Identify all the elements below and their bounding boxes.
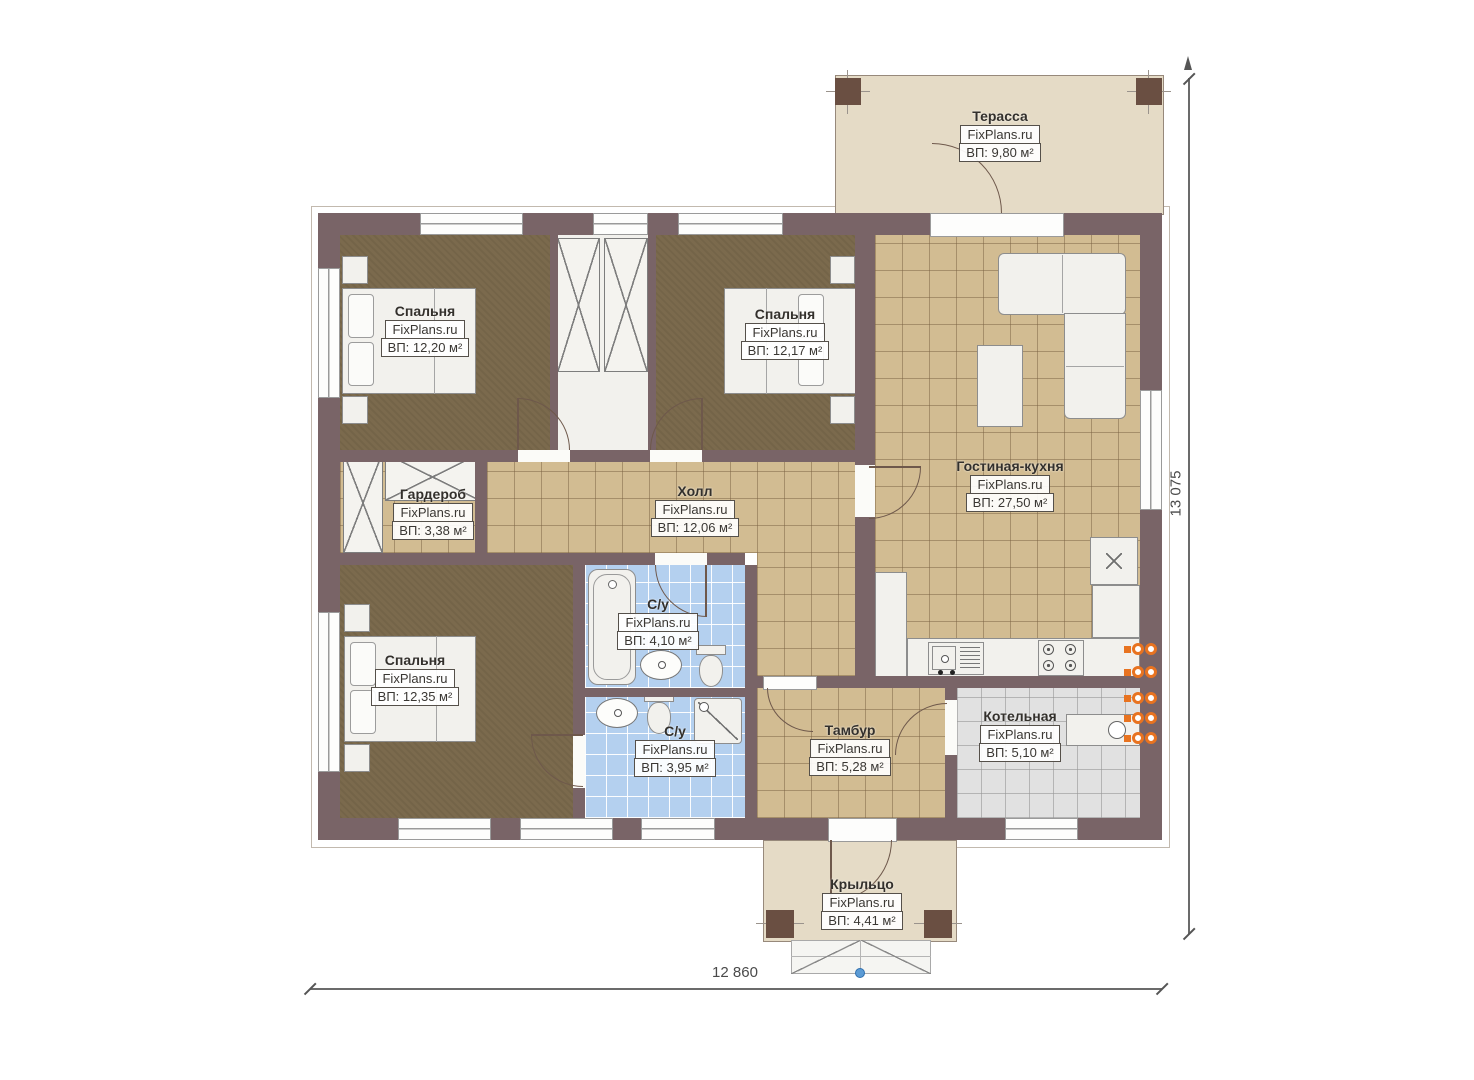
basin-drain [614, 709, 622, 717]
door-opening [518, 450, 570, 462]
sink-drain [941, 655, 949, 663]
sofa-cushion-line [1062, 255, 1063, 313]
room-label-living-kitchen: Гостиная-кухня FixPlans.ru ВП: 27,50 м² [930, 458, 1090, 512]
bathtub-drain [608, 580, 617, 589]
room-name: Гардероб [400, 486, 466, 502]
radiator-icon [1132, 712, 1144, 724]
stove-burner [1043, 644, 1054, 655]
watermark-box: FixPlans.ru [385, 320, 464, 339]
room-name: Котельная [983, 708, 1056, 724]
room-name: Гостиная-кухня [956, 458, 1063, 474]
door-leaf [517, 398, 519, 450]
dimension-width: 12 860 [660, 964, 810, 981]
area-box: ВП: 9,80 м² [959, 143, 1040, 162]
radiator-icon [1145, 732, 1157, 744]
room-name: С/у [664, 723, 686, 739]
nightstand [342, 396, 368, 424]
area-box: ВП: 12,20 м² [381, 338, 470, 357]
wall-living-left [855, 235, 875, 688]
toilet-bowl [699, 655, 723, 687]
watermark-box: FixPlans.ru [635, 740, 714, 759]
closet-wardrobe-unit [604, 238, 648, 372]
window [641, 818, 715, 840]
pipe-symbol [1124, 715, 1131, 722]
room-label-bathroom-2: С/у FixPlans.ru ВП: 3,95 м² [605, 723, 745, 777]
wall-bedroom3-top [340, 553, 585, 565]
radiator-icon [1132, 643, 1144, 655]
room-label-boiler: Котельная FixPlans.ru ВП: 5,10 м² [950, 708, 1090, 762]
radiator-icon [1132, 732, 1144, 744]
stove-burner [1065, 644, 1076, 655]
dimension-line-horizontal [310, 988, 1162, 990]
stove-burner [1065, 660, 1076, 671]
pipe-symbol [1124, 669, 1131, 676]
area-box: ВП: 12,35 м² [371, 687, 460, 706]
room-label-bedroom-3: Спальня FixPlans.ru ВП: 12,35 м² [340, 652, 490, 706]
room-label-vestibule: Тамбур FixPlans.ru ВП: 5,28 м² [780, 722, 920, 776]
radiator-icon [1145, 643, 1157, 655]
pipe-symbol [1124, 646, 1131, 653]
radiator-icon [1132, 692, 1144, 704]
shower-head [699, 702, 709, 712]
floor-plan: Терасса FixPlans.ru ВП: 9,80 м² Спальня … [0, 0, 1474, 1080]
area-box: ВП: 4,41 м² [821, 911, 902, 930]
sofa-cushion-line [1066, 366, 1124, 367]
wall-bathrooms-right [745, 565, 757, 818]
room-name: Спальня [755, 306, 815, 322]
porch-marker-dot [855, 968, 865, 978]
window [398, 818, 491, 840]
pipe-symbol [1124, 735, 1131, 742]
area-box: ВП: 12,17 м² [741, 341, 830, 360]
window [520, 818, 613, 840]
wall-exterior-right [1140, 213, 1162, 840]
nightstand [830, 256, 855, 284]
room-name: Терасса [972, 108, 1028, 124]
radiator-icon [1145, 692, 1157, 704]
room-label-bedroom-1: Спальня FixPlans.ru ВП: 12,20 м² [350, 303, 500, 357]
window [678, 213, 783, 235]
area-box: ВП: 27,50 м² [966, 493, 1055, 512]
kitchen-counter-left [875, 572, 907, 678]
door-opening [650, 450, 702, 462]
room-label-bathroom-1: С/у FixPlans.ru ВП: 4,10 м² [588, 596, 728, 650]
terrace-pillar-left [835, 78, 861, 105]
room-label-terrace: Терасса FixPlans.ru ВП: 9,80 м² [930, 108, 1070, 162]
area-box: ВП: 3,38 м² [392, 521, 473, 540]
room-name: Спальня [385, 652, 445, 668]
dimension-arrow [1184, 56, 1192, 70]
room-name: Крыльцо [830, 876, 894, 892]
room-name: С/у [647, 596, 669, 612]
kitchen-counter-right [1092, 585, 1140, 638]
terrace-door-opening [930, 213, 1064, 237]
door-leaf [869, 466, 921, 468]
watermark-box: FixPlans.ru [822, 893, 901, 912]
watermark-box: FixPlans.ru [980, 725, 1059, 744]
area-box: ВП: 12,06 м² [651, 518, 740, 537]
window [593, 213, 648, 235]
door-leaf [531, 734, 583, 736]
drainboard-lines [960, 647, 980, 669]
area-box: ВП: 5,28 м² [809, 757, 890, 776]
radiator-icon [1132, 666, 1144, 678]
window [318, 268, 340, 398]
dimension-line-vertical [1188, 78, 1190, 934]
nightstand [342, 256, 368, 284]
closet-wardrobe-unit [557, 238, 600, 372]
room-label-bedroom-2: Спальня FixPlans.ru ВП: 12,17 м² [710, 306, 860, 360]
basin-drain [658, 661, 666, 669]
hall-corridor-floor [757, 553, 855, 676]
watermark-box: FixPlans.ru [618, 613, 697, 632]
nightstand [830, 396, 855, 424]
pipe-symbol [1124, 695, 1131, 702]
area-box: ВП: 3,95 м² [634, 758, 715, 777]
watermark-box: FixPlans.ru [745, 323, 824, 342]
entrance-door-opening [828, 818, 897, 842]
room-name: Тамбур [825, 722, 876, 738]
area-box: ВП: 5,10 м² [979, 743, 1060, 762]
porch-ramp-line [861, 940, 931, 974]
window [1005, 818, 1078, 840]
wall-hall-top [340, 450, 875, 462]
window [420, 213, 523, 235]
watermark-box: FixPlans.ru [970, 475, 1049, 494]
room-label-porch: Крыльцо FixPlans.ru ВП: 4,41 м² [792, 876, 932, 930]
area-box: ВП: 4,10 м² [617, 631, 698, 650]
coffee-table [977, 345, 1023, 427]
radiator-icon [1145, 666, 1157, 678]
watermark-box: FixPlans.ru [375, 669, 454, 688]
room-name: Спальня [395, 303, 455, 319]
door-leaf [701, 398, 703, 450]
faucet-dot [938, 670, 943, 675]
watermark-box: FixPlans.ru [393, 503, 472, 522]
watermark-box: FixPlans.ru [655, 500, 734, 519]
nightstand [344, 744, 370, 772]
room-label-wardrobe: Гардероб FixPlans.ru ВП: 3,38 м² [363, 486, 503, 540]
window [318, 612, 340, 772]
room-name: Холл [677, 483, 712, 499]
dimension-height: 13 075 [1168, 454, 1185, 534]
window [1140, 390, 1162, 510]
radiator-icon [1145, 712, 1157, 724]
wall-bedroom2-left [648, 235, 656, 450]
terrace-pillar-right [1136, 78, 1162, 105]
faucet-dot [950, 670, 955, 675]
x-symbol [1106, 553, 1122, 569]
door-opening [655, 553, 707, 565]
watermark-box: FixPlans.ru [960, 125, 1039, 144]
porch-pillar-left [766, 910, 794, 938]
room-label-hall: Холл FixPlans.ru ВП: 12,06 м² [625, 483, 765, 537]
nightstand [344, 604, 370, 632]
watermark-box: FixPlans.ru [810, 739, 889, 758]
stove-burner [1043, 660, 1054, 671]
wall-bathroom-divider [585, 688, 745, 697]
